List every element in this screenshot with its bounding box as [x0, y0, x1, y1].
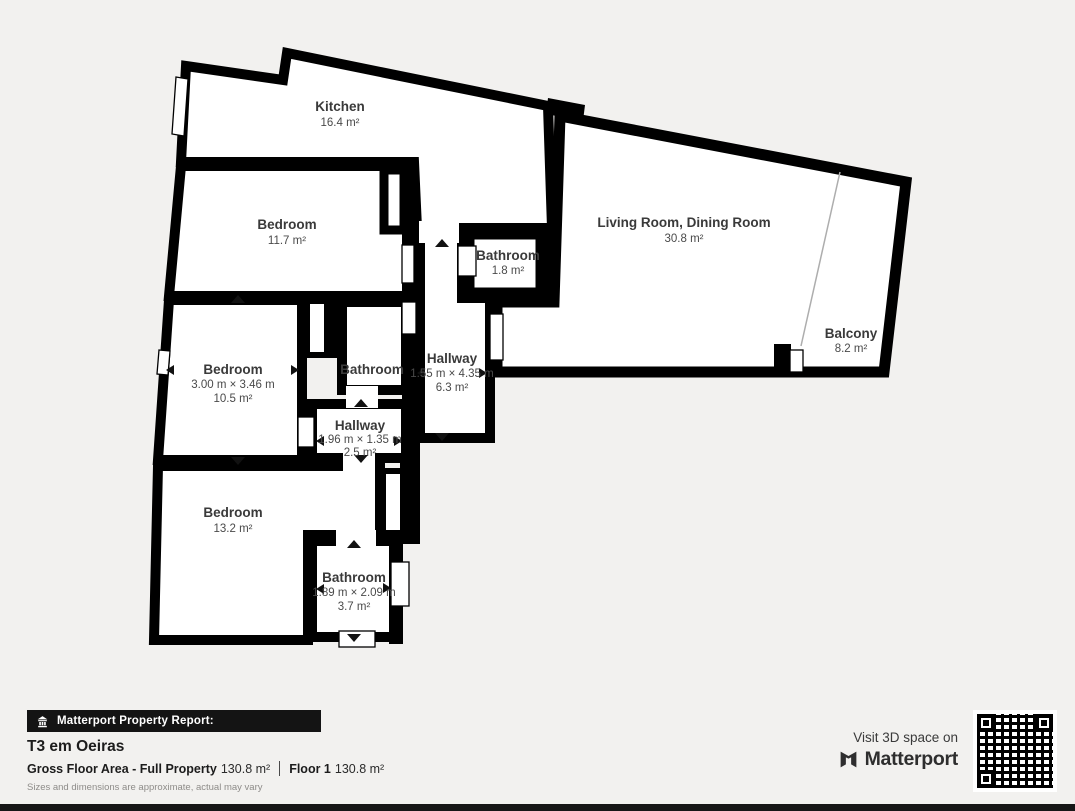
- disclaimer-text: Sizes and dimensions are approximate, ac…: [27, 782, 263, 793]
- window-bathroom-bottom-right: [391, 562, 409, 606]
- closet-bedroom-bottom: [383, 471, 403, 533]
- room-label-name: Balcony: [825, 326, 878, 341]
- qr-finder-top-right: [1035, 714, 1053, 732]
- room-label-area: 6.3 m²: [436, 382, 469, 394]
- floor-label: Floor 1: [289, 762, 331, 776]
- floor-area-summary: Gross Floor Area - Full Property 130.8 m…: [27, 761, 384, 776]
- room-label-dims: 1.55 m × 4.35 m: [410, 368, 493, 380]
- room-label-area: 8.2 m²: [835, 343, 868, 355]
- room-label-name: Hallway: [335, 418, 386, 433]
- qr-finder-top-left: [977, 714, 995, 732]
- floor-plan-drawing: Kitchen 16.4 m² Bedroom 11.7 m² Bedroom …: [0, 0, 1075, 811]
- bottom-border-bar: [0, 804, 1075, 811]
- room-bathroom-top-floor: [470, 235, 540, 292]
- report-title-bar: Matterport Property Report:: [27, 710, 321, 732]
- room-label-name: Bedroom: [257, 217, 316, 232]
- door-kitchen-hallway: [419, 221, 459, 243]
- door-living-balcony: [790, 350, 803, 372]
- room-label-area: 1.8 m²: [492, 265, 525, 277]
- qr-code: [973, 710, 1057, 792]
- opening-hallway-living: [490, 314, 503, 360]
- room-label-area: 13.2 m²: [214, 523, 253, 535]
- matterport-m-icon: [838, 749, 859, 770]
- room-label-area: 16.4 m²: [321, 117, 360, 129]
- matterport-wordmark: Matterport: [865, 748, 958, 771]
- window-bathroom-mid-hallway: [402, 302, 416, 334]
- room-label-name: Bathroom: [322, 570, 386, 585]
- door-bathroom-top: [458, 246, 476, 276]
- matterport-logo: Matterport: [790, 747, 958, 771]
- room-label-name: Bathroom: [340, 362, 404, 377]
- wall-kitchen-living: [540, 230, 552, 300]
- floor-plan-report-page: Kitchen 16.4 m² Bedroom 11.7 m² Bedroom …: [0, 0, 1075, 811]
- visit-3d-label: Visit 3D space on: [820, 730, 958, 745]
- room-label-name: Kitchen: [315, 99, 365, 114]
- room-label-name: Bedroom: [203, 505, 262, 520]
- room-label-name: Hallway: [427, 351, 478, 366]
- room-label-name: Living Room, Dining Room: [597, 215, 770, 230]
- wall-bath-window-bottom: [389, 604, 403, 644]
- room-label-dims: 1.89 m × 2.09 m: [312, 587, 395, 599]
- gfa-value: 130.8 m²: [221, 762, 270, 776]
- divider: [279, 761, 280, 776]
- closet-niche: [310, 304, 324, 352]
- room-label-area: 10.5 m²: [214, 393, 253, 405]
- wall-bath-window-top: [389, 534, 403, 564]
- room-label-dims: 1.96 m × 1.35 m: [318, 434, 401, 446]
- room-label-name: Bathroom: [476, 248, 540, 263]
- room-label-area: 3.7 m²: [338, 601, 371, 613]
- room-label-name: Bedroom: [203, 362, 262, 377]
- qr-finder-bottom-left: [977, 770, 995, 788]
- opening-bedroom-top-hallway: [402, 245, 414, 283]
- wall-bathroom-mid-partition: [326, 292, 344, 358]
- property-name: T3 em Oeiras: [27, 738, 124, 756]
- door-bedroom-mid-hallway: [298, 417, 314, 447]
- room-floors: [154, 53, 906, 640]
- room-label-area: 11.7 m²: [268, 235, 306, 247]
- room-label-area: 30.8 m²: [665, 233, 704, 245]
- window-bathroom-bottom-south: [339, 631, 375, 647]
- gfa-label: Gross Floor Area - Full Property: [27, 762, 217, 776]
- floor-value: 130.8 m²: [335, 762, 384, 776]
- building-icon: [36, 715, 49, 728]
- wall-balcony-stub: [774, 344, 791, 374]
- report-bar-label: Matterport Property Report:: [57, 715, 214, 727]
- room-label-area: 2.5 m²: [344, 447, 377, 459]
- room-label-dims: 3.00 m × 3.46 m: [191, 379, 274, 391]
- closet-bedroom-top: [384, 170, 404, 230]
